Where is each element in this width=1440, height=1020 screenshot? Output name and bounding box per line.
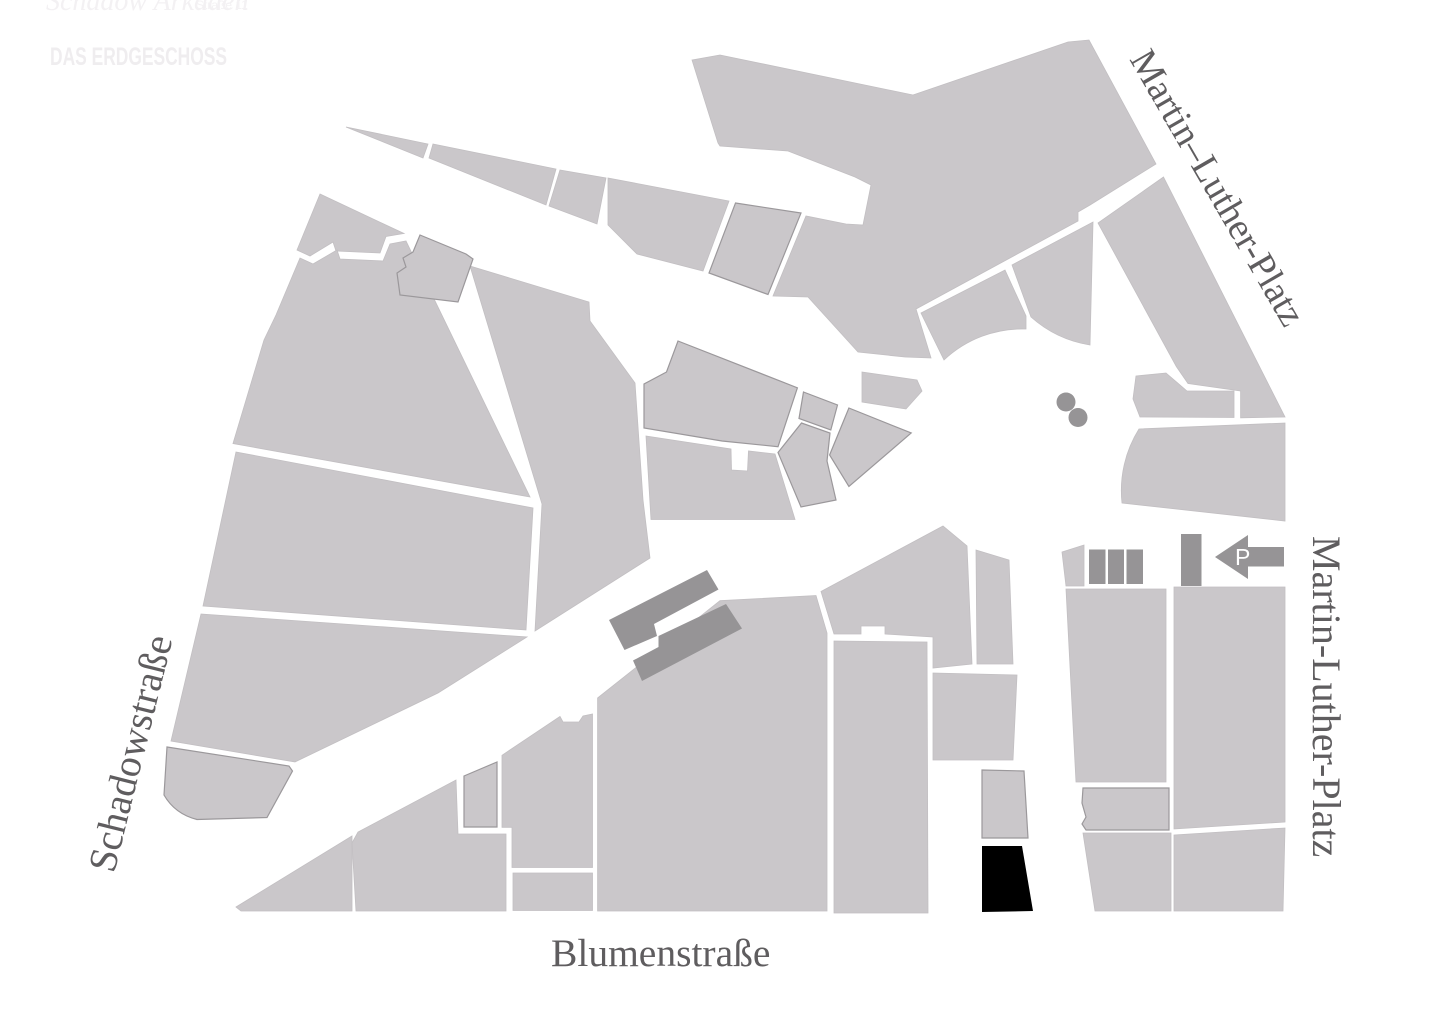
svg-text:P: P [1235,544,1250,570]
svg-text:Straße 11: Straße 11 [196,0,248,12]
svg-text:DAS ERDGESCHOSS: DAS ERDGESCHOSS [50,43,227,71]
svg-text:Martin-Luther-Platz: Martin-Luther-Platz [1304,536,1349,857]
svg-text:Blumenstraße: Blumenstraße [551,931,770,975]
